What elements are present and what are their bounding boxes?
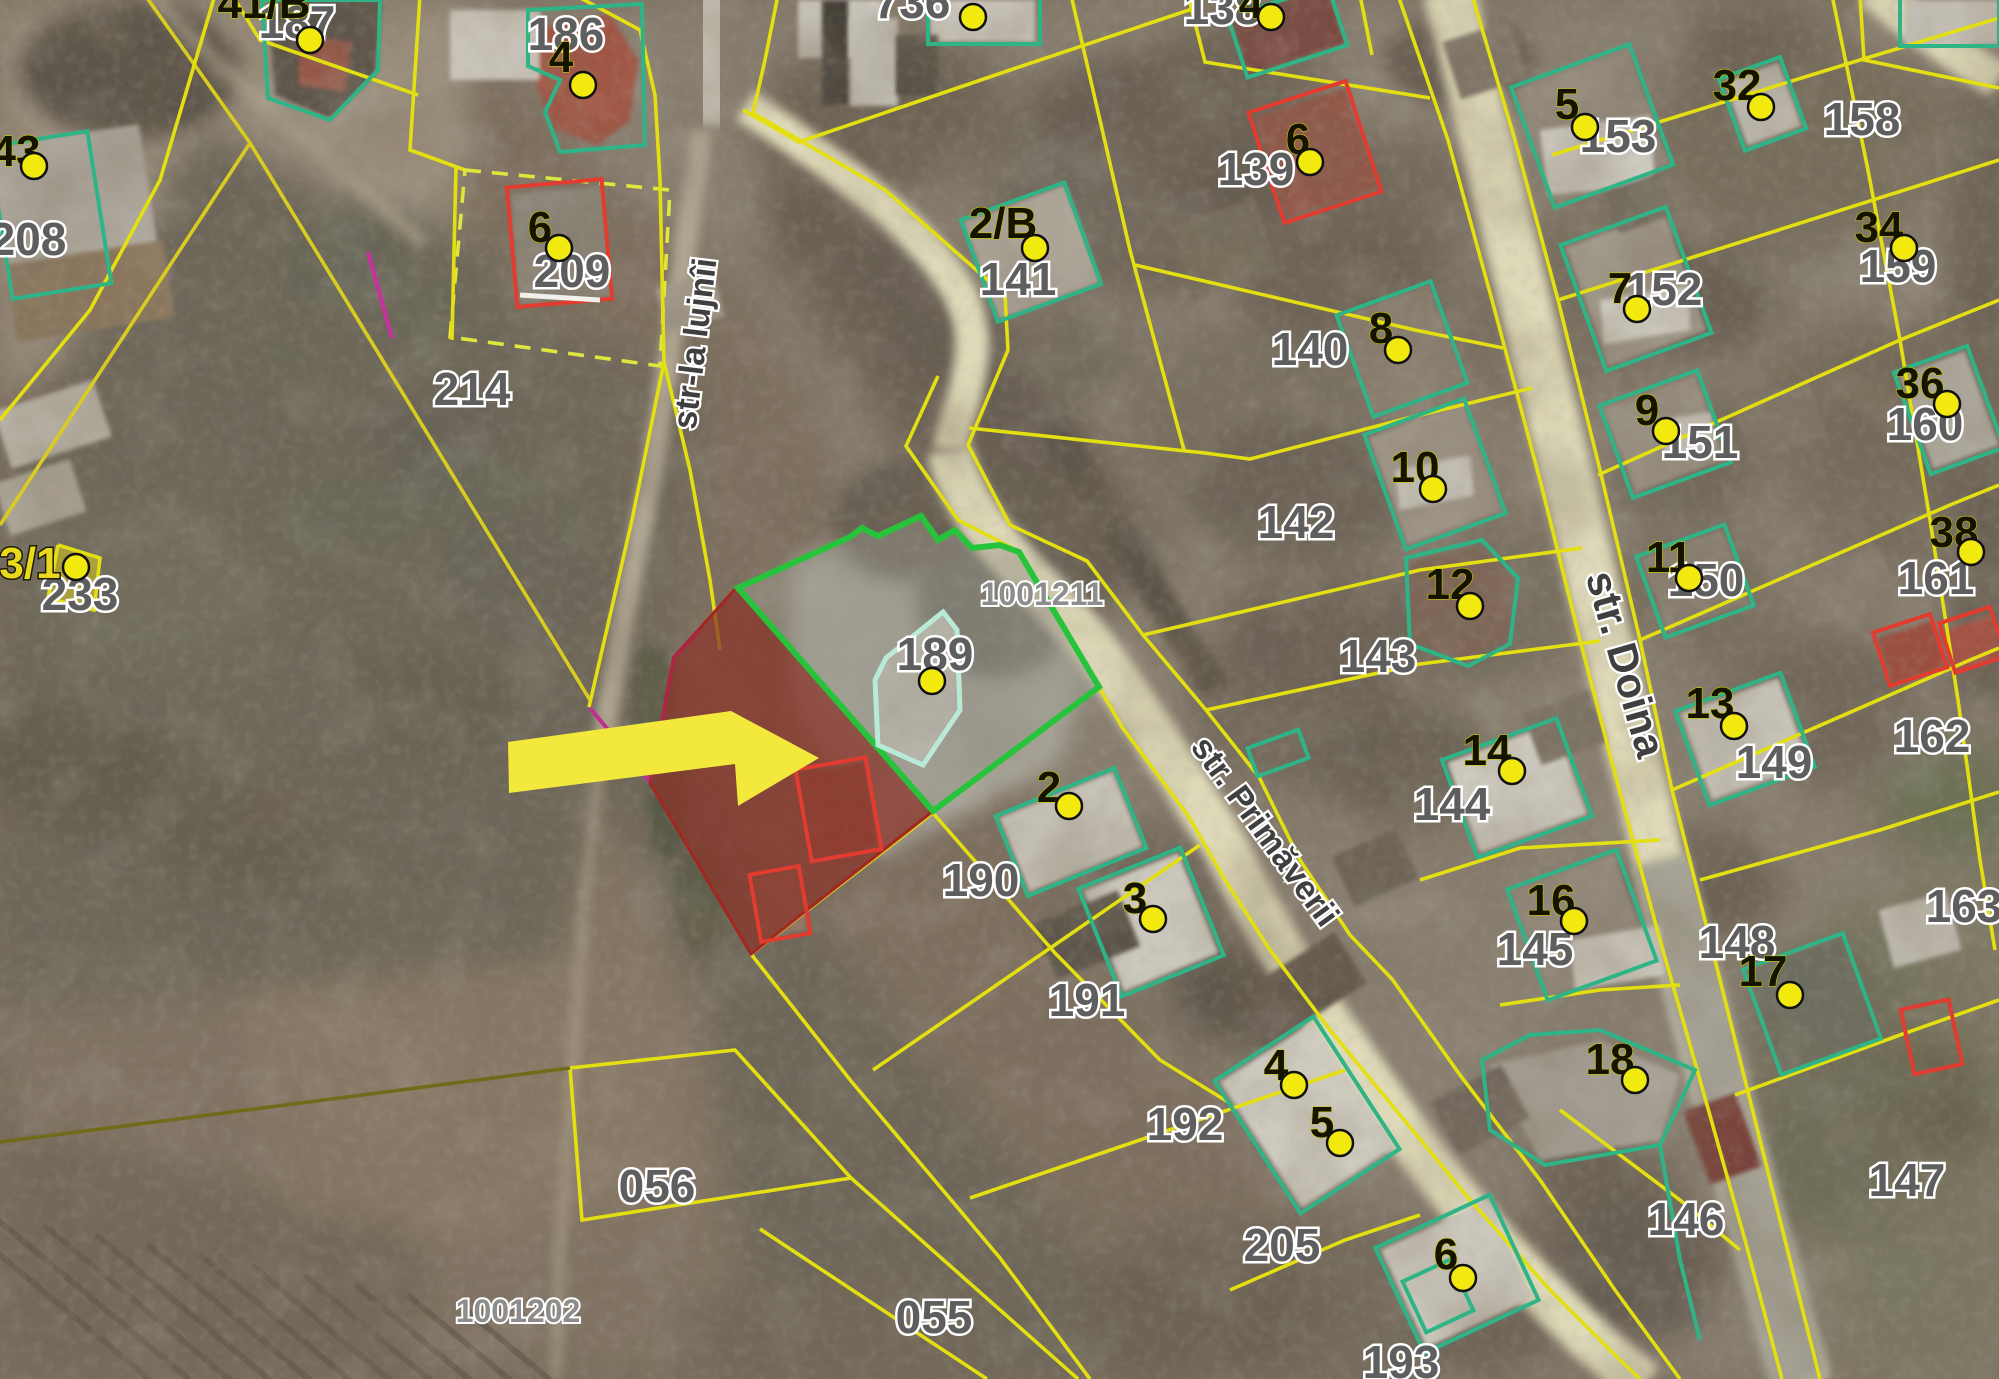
- svg-text:41/B: 41/B: [218, 0, 311, 28]
- svg-text:163: 163: [1926, 880, 1999, 932]
- svg-text:149: 149: [1736, 736, 1813, 788]
- svg-text:162: 162: [1894, 710, 1971, 762]
- svg-text:145: 145: [1497, 923, 1574, 975]
- svg-text:208: 208: [0, 213, 66, 265]
- svg-text:1001202: 1001202: [456, 1293, 581, 1329]
- svg-text:205: 205: [1244, 1219, 1321, 1271]
- svg-text:4: 4: [549, 33, 574, 82]
- svg-text:144: 144: [1414, 778, 1491, 830]
- svg-text:140: 140: [1272, 323, 1349, 375]
- svg-text:056: 056: [619, 1160, 696, 1212]
- svg-text:191: 191: [1049, 974, 1126, 1026]
- svg-text:143: 143: [1340, 630, 1417, 682]
- svg-text:147: 147: [1869, 1154, 1946, 1206]
- svg-text:146: 146: [1648, 1193, 1725, 1245]
- svg-text:193: 193: [1363, 1336, 1440, 1379]
- svg-text:142: 142: [1258, 496, 1335, 548]
- svg-text:141: 141: [980, 253, 1057, 305]
- svg-text:139: 139: [1218, 143, 1295, 195]
- svg-text:214: 214: [434, 363, 511, 415]
- svg-text:055: 055: [896, 1291, 973, 1343]
- svg-text:192: 192: [1147, 1098, 1224, 1150]
- svg-text:736: 736: [874, 0, 951, 28]
- svg-text:1001211: 1001211: [981, 576, 1104, 612]
- svg-text:158: 158: [1824, 93, 1901, 145]
- svg-text:190: 190: [943, 854, 1020, 906]
- svg-text:3/1: 3/1: [0, 539, 61, 588]
